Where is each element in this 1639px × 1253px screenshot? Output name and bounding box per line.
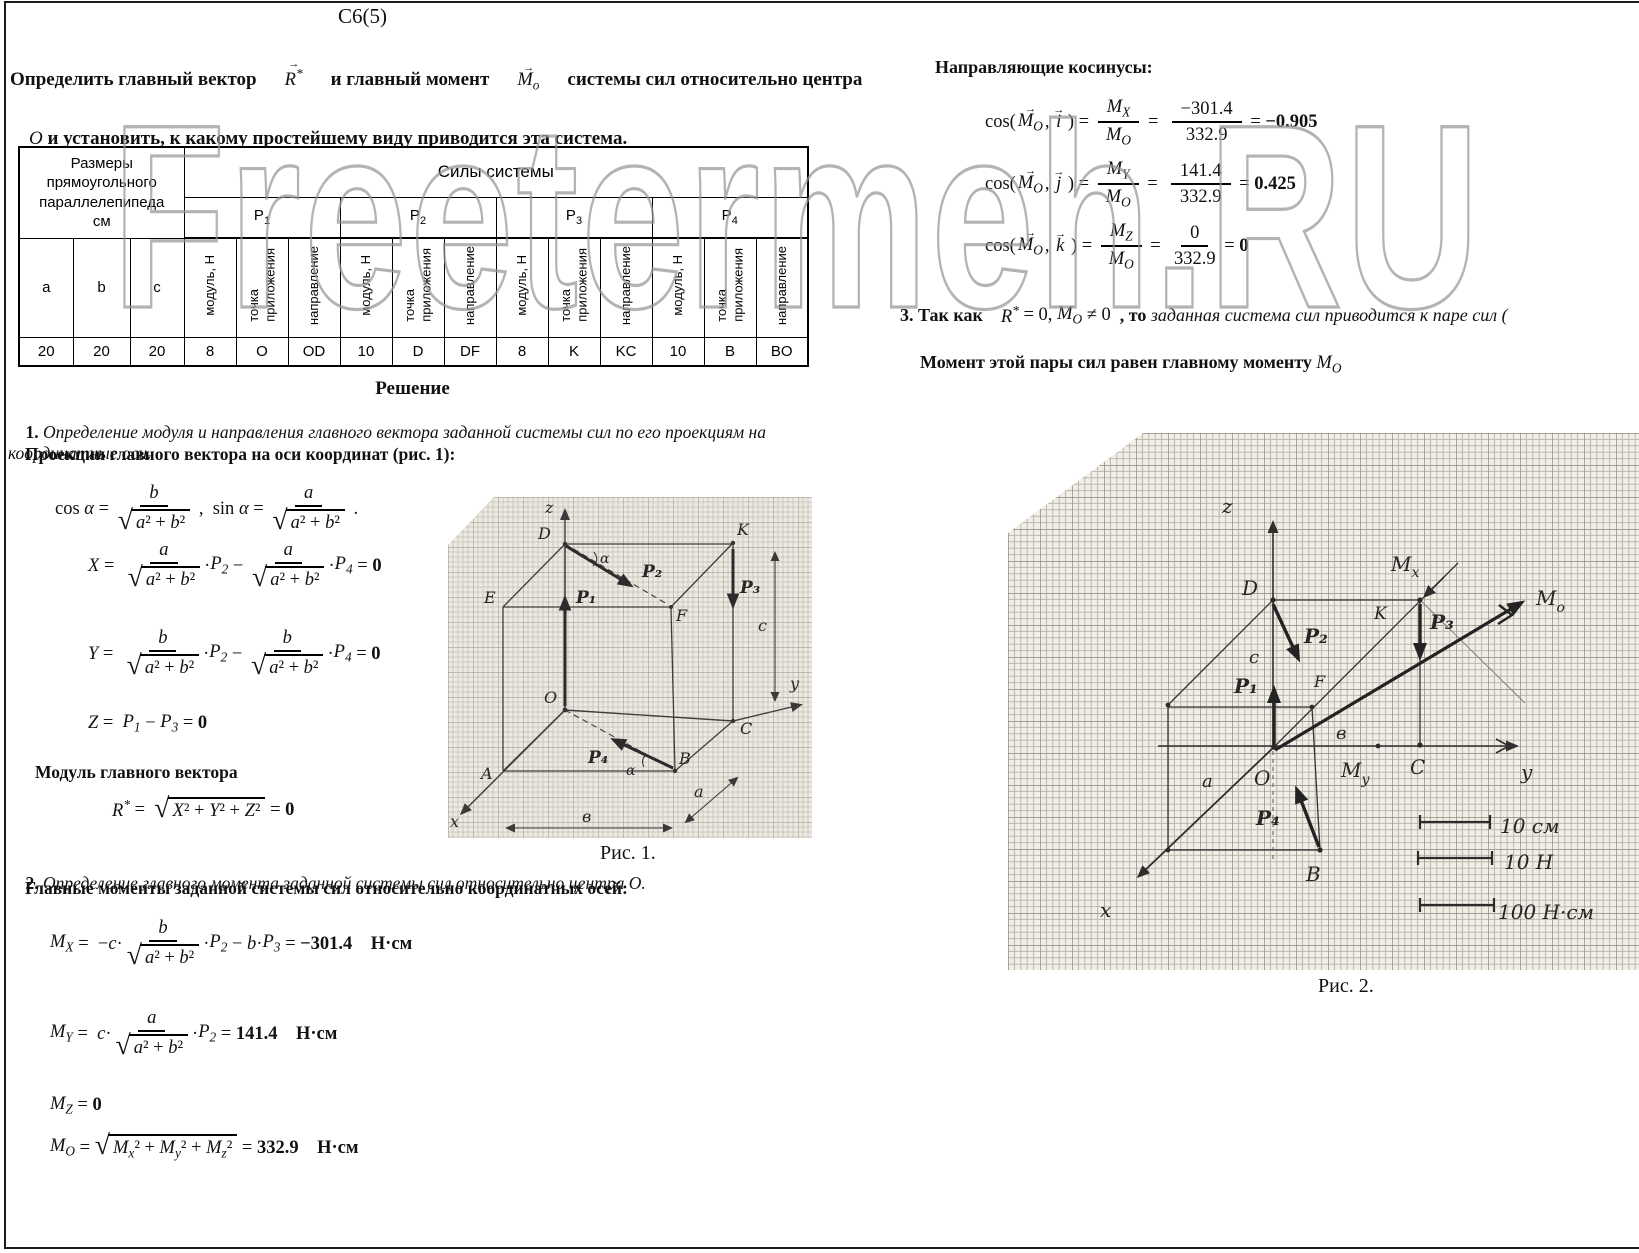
col-point-p4: точка приложения — [704, 238, 756, 337]
P2-label: P₂ — [641, 562, 662, 582]
point-C-label: C — [740, 719, 752, 738]
formula-X: X = a√a² + b²·P2 − a√a² + b²·P4 = 0 — [88, 540, 382, 592]
point-K-label: K — [1373, 604, 1388, 624]
formula-MO: MO = √Mx² + My² + Mz² = 332.9 Н·см — [50, 1134, 358, 1162]
col-dir-p3: направление — [600, 238, 652, 337]
formula-MY: MY = c·a√a² + b²·P2 = 141.4 Н·см — [50, 1008, 337, 1060]
P1-label: P₁ — [575, 588, 596, 608]
group-P1: P1 — [184, 197, 340, 238]
step3-text: 3. Так как R* = 0, MO ≠ 0 , то заданная … — [900, 303, 1508, 328]
point-D-label: D — [1241, 576, 1258, 600]
dim-b-label: в — [1336, 723, 1346, 744]
P3-label: P₃ — [1429, 610, 1454, 634]
moments-heading: Главные моменты заданной системы сил отн… — [25, 878, 628, 899]
z-axis-label: z — [1221, 494, 1233, 518]
col-modul-p2: модуль, Н — [340, 238, 392, 337]
MO-symbol: MO — [1316, 353, 1341, 377]
P2-label: P₂ — [1303, 624, 1328, 648]
col-dir-p1: направление — [288, 238, 340, 337]
x-axis-label: x — [450, 812, 459, 831]
scale-10cm-label: 10 см — [1500, 814, 1560, 838]
pair-moment-text: Момент этой пары сил равен главному моме… — [920, 352, 1341, 377]
y-axis-label: y — [789, 674, 800, 693]
formula-Z: Z = P1 − P3 = 0 — [88, 712, 207, 736]
col-point-p3: точка приложения — [548, 238, 600, 337]
forces-header-cell: Силы системы — [184, 147, 808, 197]
formula-cos-i: cos(→MO, →i ) = MXMO = −301.4332.9 = −0.… — [985, 97, 1318, 148]
figure-1: z D K E F O A B C x y P₁ P₂ P₃ P₄ α α a … — [448, 497, 812, 838]
formula-R: R* = √X² + Y² + Z² = 0 — [112, 797, 294, 823]
formula-cos-alpha: cos α = b√a² + b² , sin α = a√a² + b² . — [55, 483, 358, 535]
point-K-label: K — [736, 520, 750, 539]
col-modul-p4: модуль, Н — [652, 238, 704, 337]
table-row: 202020 8OOD 10DDF 8KKC 10BBO — [19, 337, 808, 366]
alpha-label-2: α — [626, 763, 636, 779]
dim-a-label: a — [1202, 771, 1213, 792]
point-O-label: O — [544, 688, 557, 707]
problem-statement-line1: Определить главный вектор →R* и главный … — [10, 66, 862, 94]
modulus-heading: Модуль главного вектора — [35, 762, 238, 783]
formula-Y: Y = b√a² + b²·P2 − b√a² + b²·P4 = 0 — [88, 628, 381, 680]
point-B-label: B — [1305, 862, 1321, 886]
point-B-label: B — [678, 749, 691, 768]
figure-2: z D Mx K P₃ Mo My C y в F P₂ с P₁ O a P₄… — [1008, 433, 1639, 970]
scale-10N-label: 10 Н — [1504, 850, 1554, 874]
group-P3: P3 — [496, 197, 652, 238]
scale-100Ncm-label: 100 Н·см — [1498, 900, 1594, 924]
document-page: Freetermeh.RU С6(5) Определить главный в… — [0, 0, 1639, 1253]
formula-R-M-conditions: R* = 0, MO ≠ 0 — [1001, 303, 1111, 328]
col-modul-p1: модуль, Н — [184, 238, 236, 337]
point-D-label: D — [537, 524, 551, 543]
problem-text-2: и главный момент — [331, 69, 490, 91]
vector-R-symbol: →R* — [283, 66, 305, 91]
moment-M-symbol: →Mо — [515, 70, 541, 94]
P1-label: P₁ — [1233, 674, 1258, 698]
figure-1-caption: Рис. 1. — [600, 842, 656, 865]
col-a: a — [19, 238, 73, 337]
problem-text-1: Определить главный вектор — [10, 69, 257, 91]
formula-cos-j: cos(→MO, →j ) = MYMO = 141.4332.9 = 0.42… — [985, 159, 1296, 210]
projections-heading: Проекции главного вектора на оси координ… — [25, 444, 455, 465]
x-axis-label: x — [1100, 898, 1111, 922]
figure-2-caption: Рис. 2. — [1318, 975, 1374, 998]
point-F-label: F — [675, 606, 688, 625]
formula-MX: MX = −c·b√a² + b²·P2 − b·P3 = −301.4 Н·с… — [50, 918, 412, 970]
problem-text-3: системы сил относительно центра — [567, 69, 862, 91]
cosines-heading: Направляющие косинусы: — [935, 57, 1153, 78]
P3-label: P₃ — [739, 578, 760, 598]
col-point-p2: точка приложения — [392, 238, 444, 337]
col-dir-p2: направление — [444, 238, 496, 337]
dim-b-label: в — [582, 807, 591, 826]
alpha-label-1: α — [600, 551, 610, 567]
graph-paper-2 — [1008, 433, 1639, 970]
group-P4: P4 — [652, 197, 808, 238]
col-modul-p3: модуль, Н — [496, 238, 548, 337]
point-F-label: F — [1313, 672, 1326, 691]
group-P2: P2 — [340, 197, 496, 238]
P4-label: P₄ — [587, 748, 608, 768]
col-c: c — [130, 238, 184, 337]
dim-a-label: a — [694, 782, 704, 801]
page-title: С6(5) — [338, 4, 387, 29]
P4-label: P₄ — [1255, 806, 1280, 830]
formula-MZ: MZ = 0 — [50, 1094, 102, 1118]
solution-heading: Решение — [18, 378, 807, 400]
col-dir-p4: направление — [756, 238, 808, 337]
step1-text: 1. Определение модуля и направления глав… — [8, 401, 832, 485]
z-axis-label: z — [544, 498, 554, 517]
point-O-label: O — [1254, 766, 1270, 790]
dim-c-label: с — [1249, 647, 1259, 668]
point-C-label: C — [1410, 755, 1425, 779]
dim-c-label: c — [758, 616, 767, 635]
point-E-label: E — [483, 588, 496, 607]
formula-cos-k: cos(→MO, →k ) = MZMO = 0332.9 = 0 — [985, 221, 1249, 272]
col-point-p1: точка приложения — [236, 238, 288, 337]
size-header-cell: Размеры прямоугольного параллелепипеда с… — [19, 147, 184, 238]
point-A-label: A — [479, 764, 493, 783]
y-axis-label: y — [1520, 760, 1533, 784]
input-data-table: Размеры прямоугольного параллелепипеда с… — [18, 146, 809, 367]
col-b: b — [73, 238, 130, 337]
